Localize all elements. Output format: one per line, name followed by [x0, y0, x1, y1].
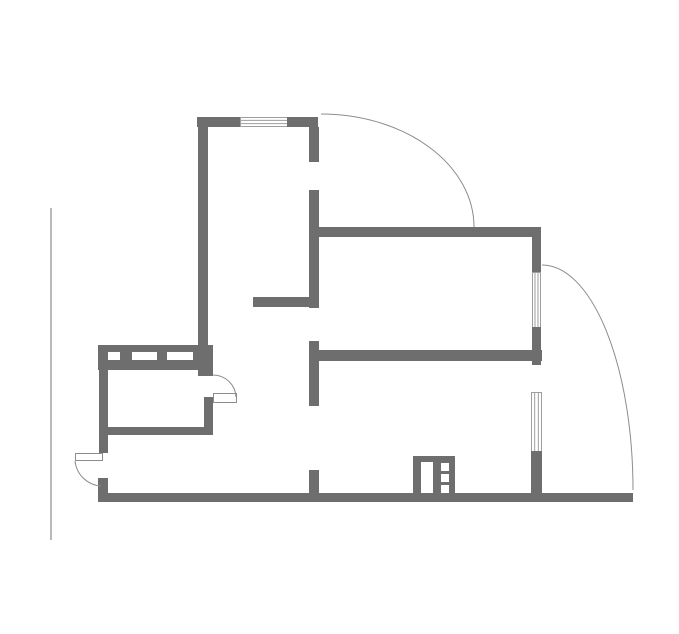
closet-band-slot-1: [108, 352, 120, 360]
partition-wall-upper-b: [309, 190, 319, 308]
left-exterior-wall: [99, 368, 108, 453]
partition-wall-mid: [309, 341, 319, 406]
room2-bottom-wall: [319, 350, 542, 361]
closet-bottom-wall: [103, 427, 213, 435]
room1-left-wall: [198, 117, 208, 347]
vent-shaft-panel: [421, 462, 433, 493]
floor-plan-canvas: [0, 0, 679, 634]
right-wall-below-window: [531, 451, 542, 497]
vent-shaft-cell-1: [441, 463, 449, 471]
room1-top-wall-right: [287, 117, 318, 127]
room2-right-window: [533, 272, 541, 328]
closet-right-wall-top: [198, 368, 213, 376]
closet-band-slot-3: [167, 352, 193, 360]
entrance-door-swing-arc: [75, 461, 101, 486]
closet-door-leaf: [214, 394, 237, 403]
room1-door-swing-arc: [321, 114, 474, 227]
room1-top-window: [240, 118, 288, 127]
vent-shaft-cell-2: [441, 474, 449, 482]
closet-band-slot-2: [132, 352, 157, 360]
hall-stub-wall: [253, 297, 319, 307]
room2-right-wall-upper: [532, 227, 541, 273]
balcony-door-swing-arc: [542, 265, 633, 490]
hall-right-window: [532, 392, 542, 452]
floor-plan-svg: [0, 0, 679, 634]
partition-wall-upper-a: [309, 127, 319, 162]
bottom-exterior-wall: [98, 493, 633, 502]
bottom-left-corner-wall: [98, 478, 108, 495]
entrance-door-leaf: [76, 454, 103, 461]
vent-shaft-cell-3: [441, 485, 449, 493]
room2-top-wall: [314, 227, 541, 237]
